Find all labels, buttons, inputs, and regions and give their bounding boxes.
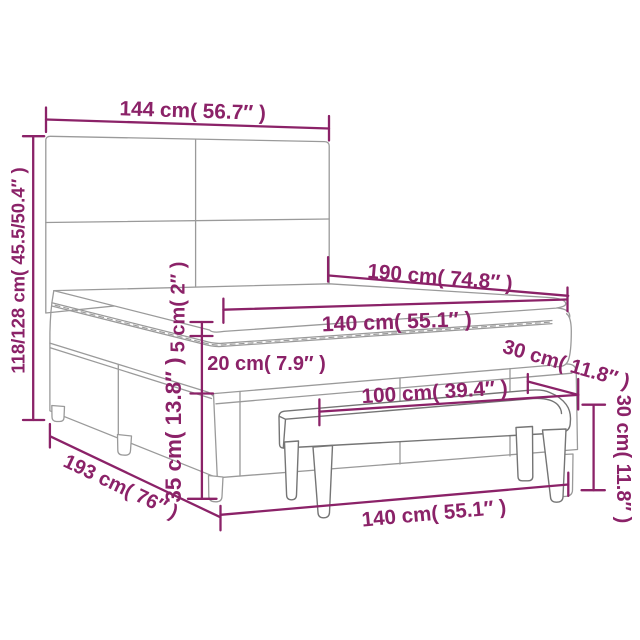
svg-text:35 cm( 13.8″ ): 35 cm( 13.8″ ) — [161, 357, 186, 502]
svg-text:5 cm( 2″ ): 5 cm( 2″ ) — [168, 262, 190, 353]
svg-text:144 cm( 56.7″ ): 144 cm( 56.7″ ) — [119, 97, 266, 125]
svg-text:30 cm( 11.8″ ): 30 cm( 11.8″ ) — [612, 395, 634, 524]
svg-text:20 cm( 7.9″ ): 20 cm( 7.9″ ) — [207, 353, 326, 375]
svg-text:118/128 cm( 45.5/50.4″ ): 118/128 cm( 45.5/50.4″ ) — [7, 167, 28, 373]
